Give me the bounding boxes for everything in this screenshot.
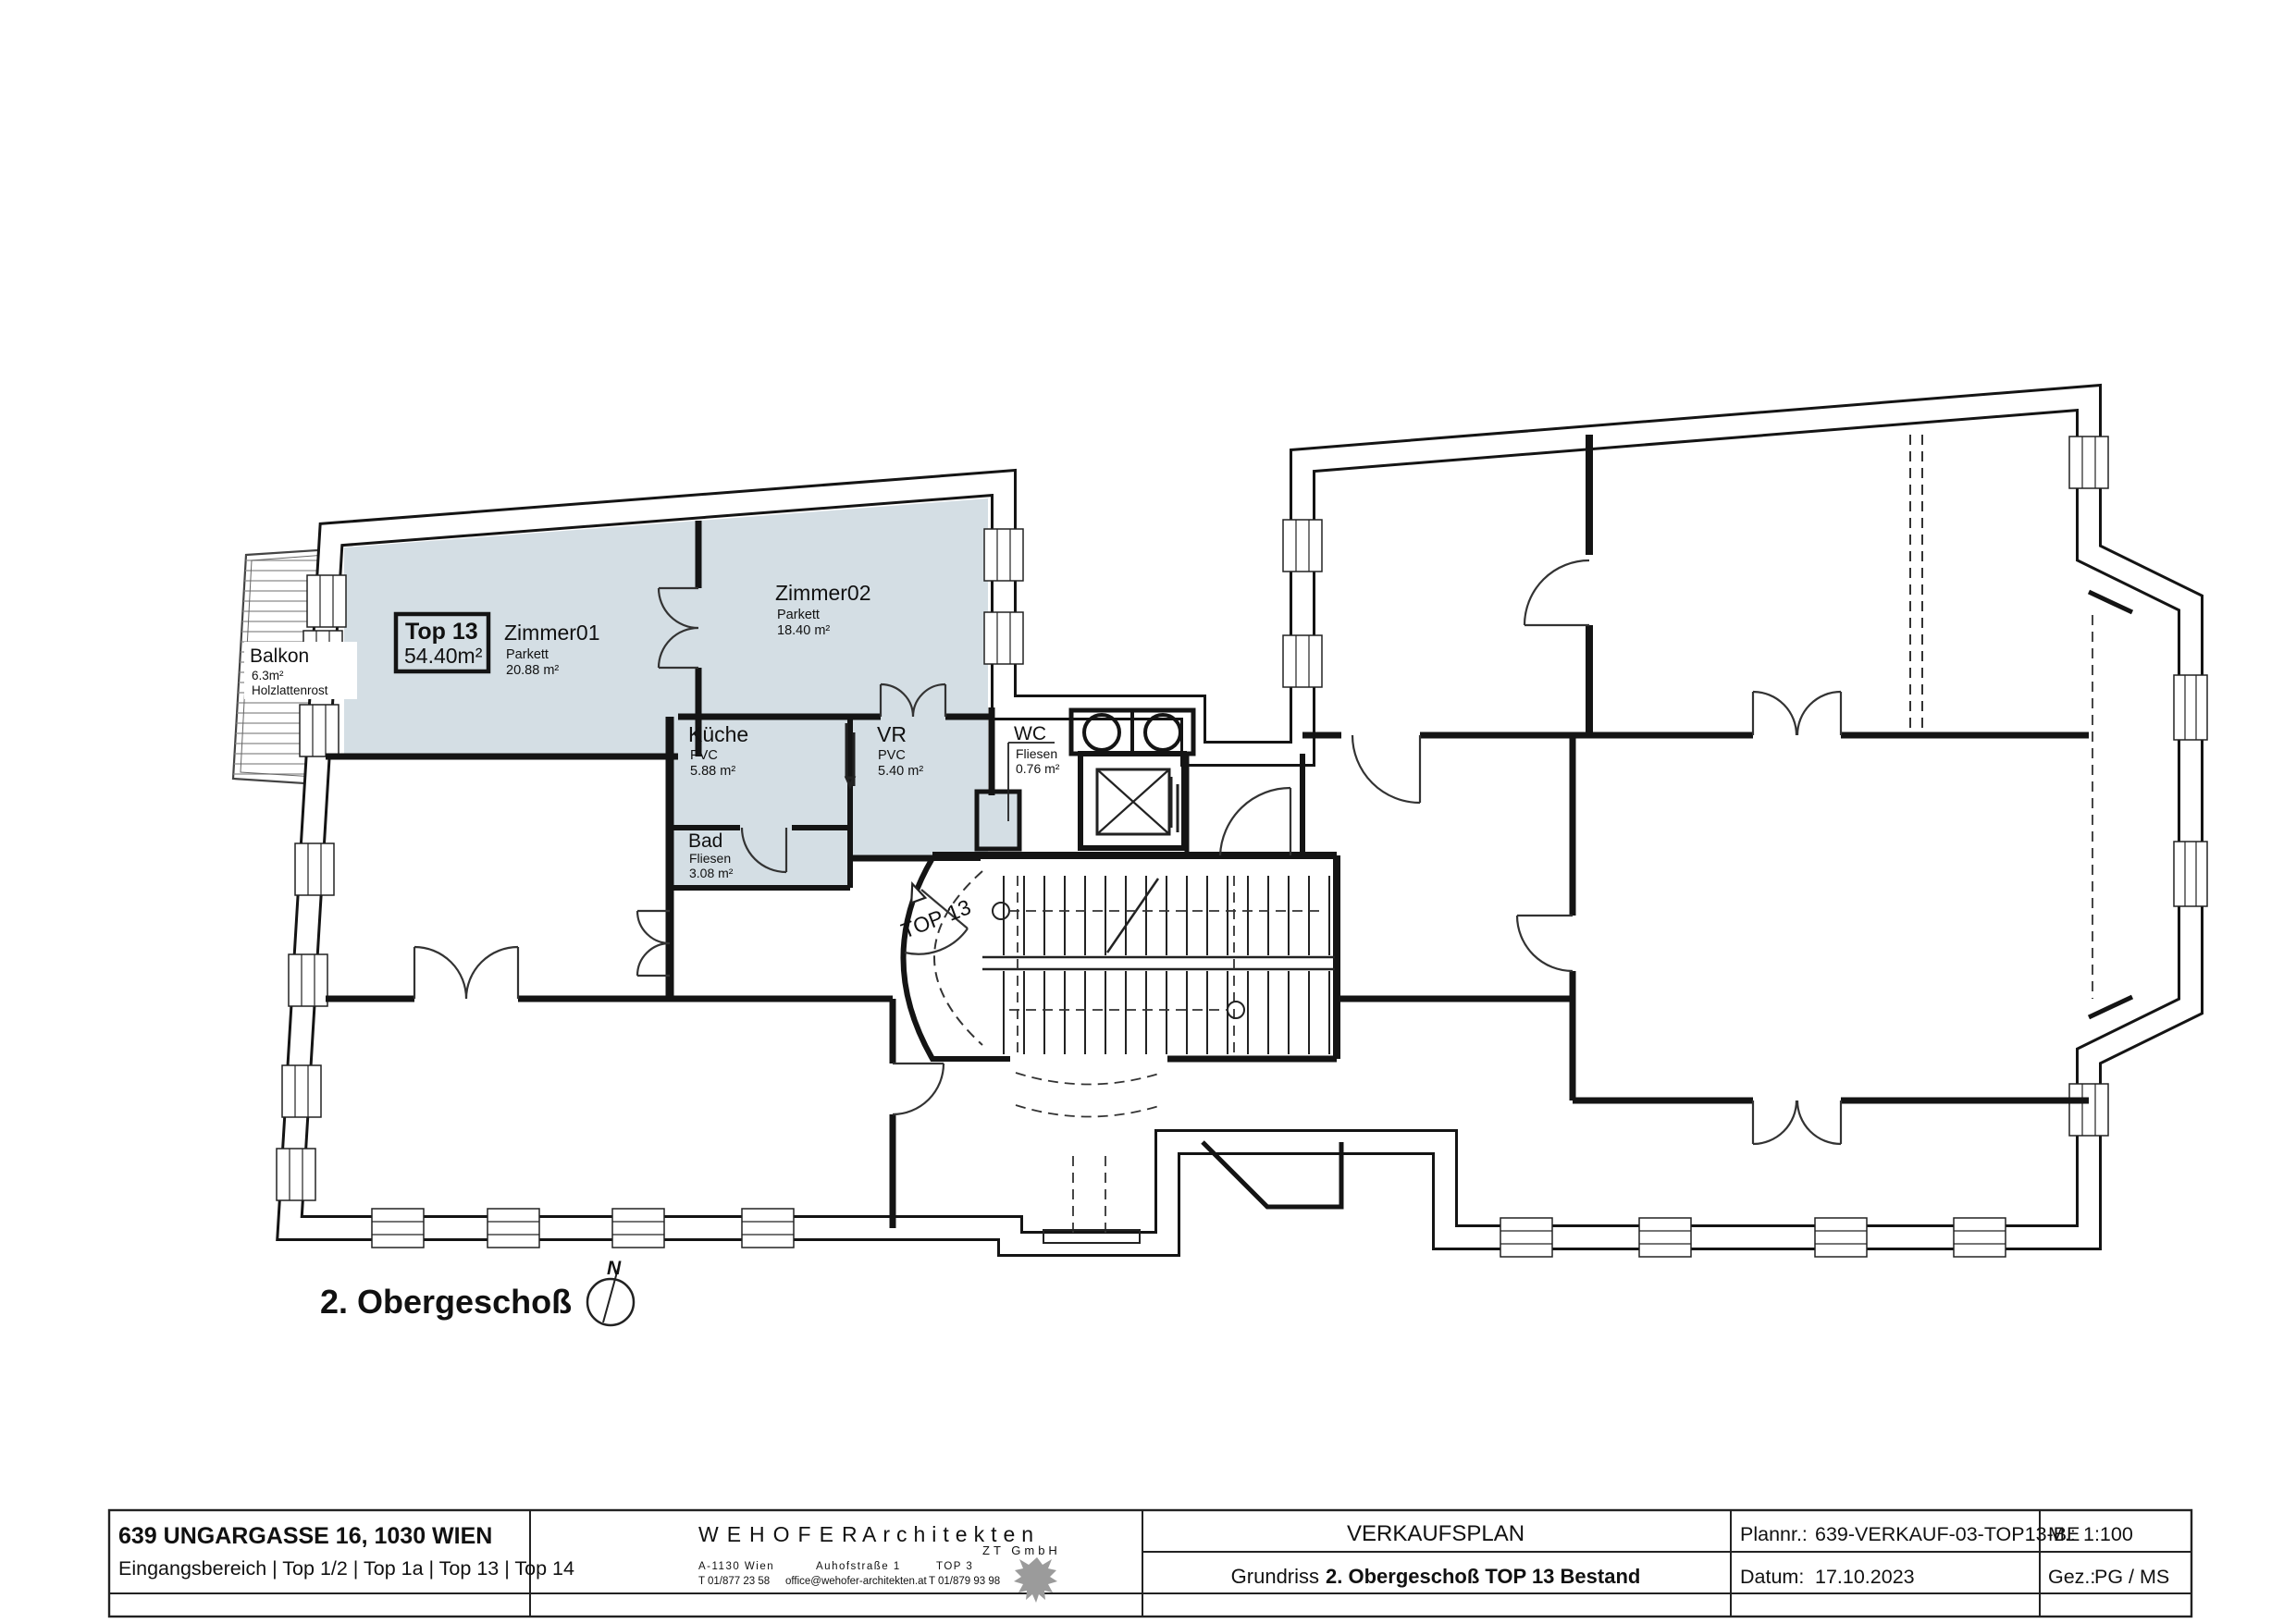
room-vr <box>850 717 988 858</box>
zimmer01-name: Zimmer01 <box>504 621 600 645</box>
top13-badge-area: 54.40m² <box>404 644 483 668</box>
elevator <box>1080 754 1184 848</box>
zimmer02-surface: Parkett <box>777 608 820 622</box>
massstab-label: M.: <box>2048 1523 2076 1545</box>
vr-surface: PVC <box>878 748 906 763</box>
gez-label: Gez.: <box>2048 1566 2095 1588</box>
plan-title: Grundriss2. Obergeschoß TOP 13 Bestand <box>1231 1565 1641 1588</box>
balkon-surface: Holzlattenrost <box>252 683 328 697</box>
project-address: 639 UNGARGASSE 16, 1030 WIEN <box>118 1523 492 1549</box>
plan-sheet: Top 13 54.40m² Zimmer01 Parkett 20.88 m²… <box>0 0 2296 1623</box>
zimmer02-area: 18.40 m² <box>777 623 830 638</box>
top13-badge-title: Top 13 <box>405 619 478 645</box>
firm-street: Auhofstraße 1 <box>816 1561 901 1572</box>
zimmer01-surface: Parkett <box>506 647 549 662</box>
firm-top: TOP 3 <box>936 1561 973 1572</box>
north-label: N <box>607 1258 622 1279</box>
datum-value: 17.10.2023 <box>1815 1566 1915 1588</box>
massstab-value: 1:100 <box>2083 1523 2133 1545</box>
zimmer02-name: Zimmer02 <box>775 581 871 605</box>
balkon-name: Balkon <box>250 646 309 667</box>
plannr-label: Plannr.: <box>1740 1523 1808 1545</box>
label-balkon: Balkon 6.3m² Holzlattenrost <box>244 642 357 699</box>
firm-email: office@wehofer-architekten.at <box>785 1576 928 1587</box>
balkon-area: 6.3m² <box>252 669 284 682</box>
plan-type: VERKAUFSPLAN <box>1347 1521 1524 1546</box>
wc-name: WC <box>1014 723 1046 744</box>
room-wc <box>977 792 1019 849</box>
entrance-passage <box>1016 1073 1162 1243</box>
vr-name: VR <box>877 722 907 746</box>
wc-area: 0.76 m² <box>1016 761 1060 776</box>
firm-phone1: T 01/877 23 58 <box>698 1576 770 1587</box>
datum-label: Datum: <box>1740 1566 1804 1588</box>
kueche-name: Küche <box>688 722 748 746</box>
firm-phone2: T 01/879 93 98 <box>929 1576 1000 1587</box>
vr-area: 5.40 m² <box>878 764 923 779</box>
stair-treads-upper <box>1004 876 1329 955</box>
bad-surface: Fliesen <box>689 851 731 866</box>
bad-area: 3.08 m² <box>689 866 734 880</box>
wc-surface: Fliesen <box>1016 746 1057 761</box>
floor-plan: Top 13 54.40m² Zimmer01 Parkett 20.88 m²… <box>0 0 2296 1623</box>
floor-title: 2. Obergeschoß <box>320 1283 572 1321</box>
gez-value: PG / MS <box>2094 1566 2169 1588</box>
exterior-walls <box>290 398 2191 1244</box>
north-arrow: N <box>587 1258 634 1325</box>
zimmer01-area: 20.88 m² <box>506 663 559 678</box>
floor-title-group: 2. Obergeschoß N <box>320 1258 634 1325</box>
interior-walls-right-wing <box>1302 435 2132 1100</box>
firm-city: A-1130 Wien <box>698 1561 774 1572</box>
project-units: Eingangsbereich | Top 1/2 | Top 1a | Top… <box>118 1557 574 1580</box>
plannr-value: 639-VERKAUF-03-TOP13-BE <box>1815 1523 2080 1545</box>
kueche-surface: PVC <box>690 748 718 763</box>
stair-treads-lower <box>1004 971 1329 1054</box>
firm-suffix: ZT GmbH <box>982 1543 1061 1557</box>
kueche-area: 5.88 m² <box>690 764 735 779</box>
top13-badge: Top 13 54.40m² <box>396 614 488 671</box>
title-block: 639 UNGARGASSE 16, 1030 WIEN Eingangsber… <box>109 1510 2191 1617</box>
firm-name-black: WEHOFER <box>698 1522 866 1546</box>
bad-name: Bad <box>688 830 722 852</box>
